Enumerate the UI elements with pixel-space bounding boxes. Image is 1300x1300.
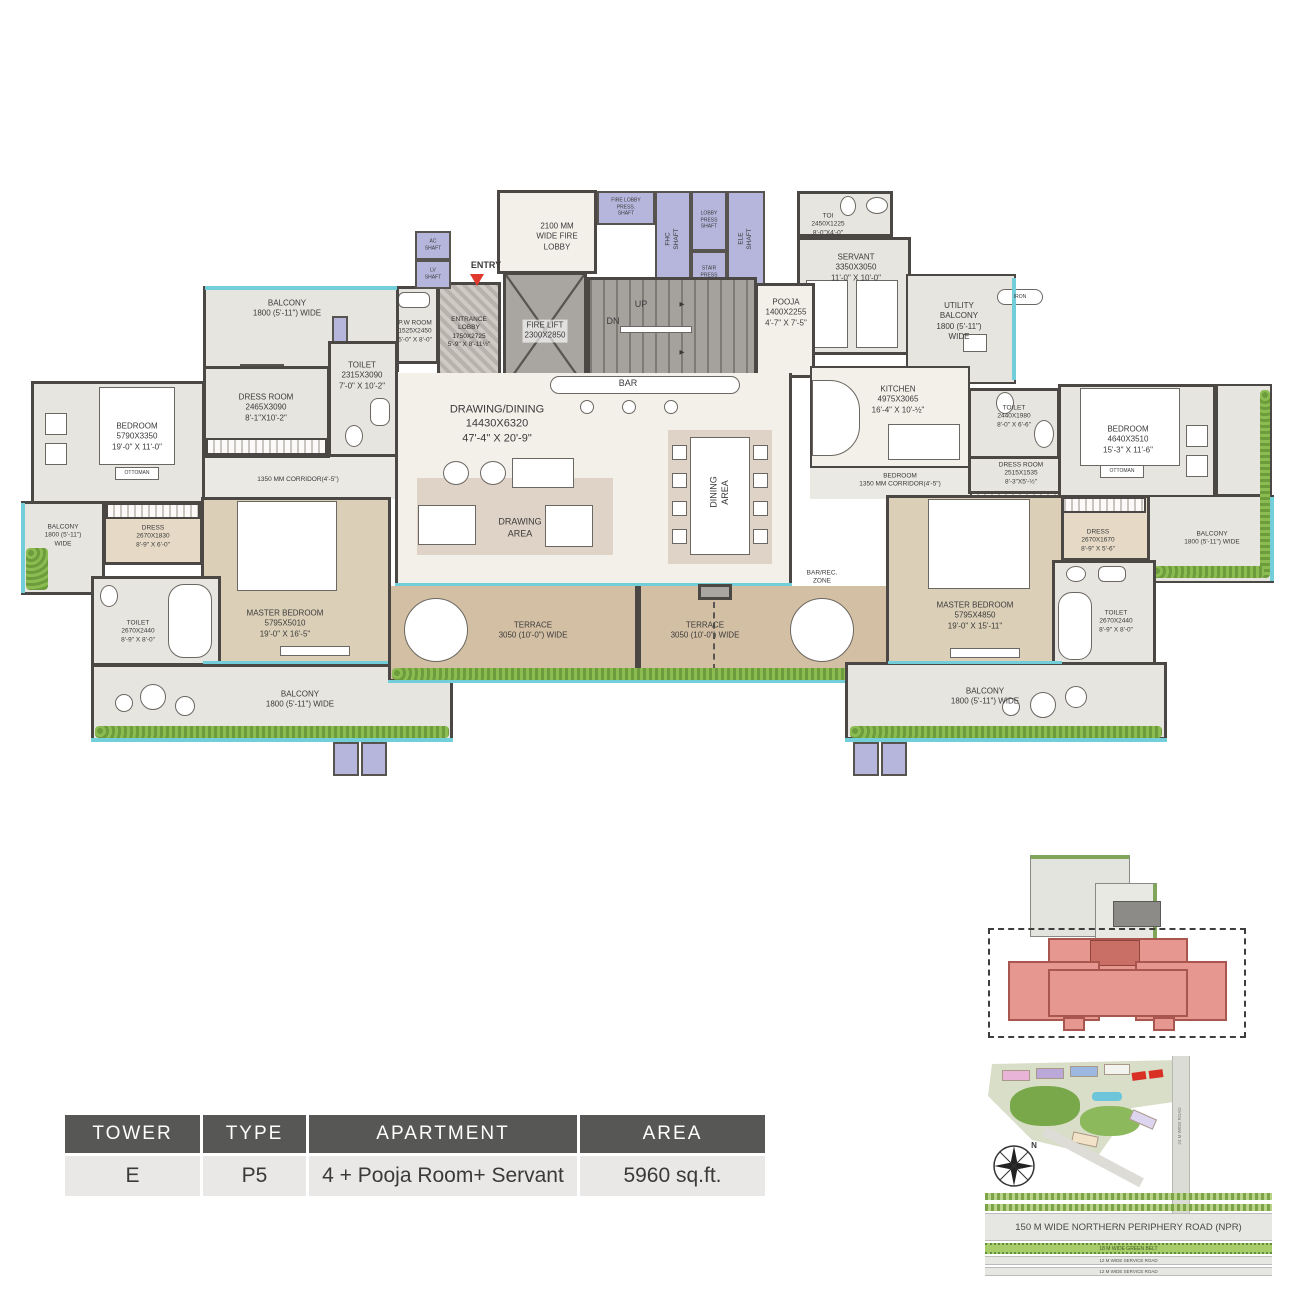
site-building-4 (1104, 1064, 1130, 1075)
chair-balcony-br-3 (1002, 698, 1020, 716)
bench-master-right (950, 648, 1020, 658)
header-type: TYPE (203, 1115, 306, 1153)
site-building-2 (1036, 1068, 1064, 1079)
vertical-road (1172, 1056, 1190, 1214)
chair-balcony-br-1 (1030, 692, 1056, 718)
chair-bedroom-left-1 (45, 413, 67, 435)
glass-utility (1012, 278, 1016, 380)
dining-chair-5 (753, 445, 768, 460)
compass: N (990, 1142, 1038, 1190)
glass-master-right-south (888, 661, 1062, 664)
basin-toilet-right-lower (1098, 566, 1126, 582)
npr-road-label: 150 M WIDE NORTHERN PERIPHERY ROAD (NPR) (985, 1222, 1272, 1233)
chair-balcony-br-2 (1065, 686, 1087, 708)
site-building-1 (1002, 1070, 1030, 1081)
green-belt-label: 18 M WIDE GREEN BELT (985, 1246, 1272, 1252)
wc-toilet-right-upper (996, 392, 1014, 414)
service-road-band-2: 12 M WIDE SERVICE ROAD (985, 1267, 1272, 1276)
service-road-1-label: 12 M WIDE SERVICE ROAD (985, 1258, 1272, 1263)
dining-chair-4 (672, 529, 687, 544)
corridor-right-floor (810, 464, 986, 499)
site-green-1 (1010, 1086, 1080, 1126)
tub-toilet-lower-left (168, 584, 212, 658)
sofa-drawing-3 (418, 505, 476, 545)
header-apartment: APARTMENT (309, 1115, 577, 1153)
plants-terrace (392, 668, 886, 680)
npr-road-band: 150 M WIDE NORTHERN PERIPHERY ROAD (NPR) (985, 1213, 1272, 1241)
plants-balcony-far-left (26, 548, 48, 590)
fire-lobby-press-shaft (597, 191, 655, 225)
value-tower: E (65, 1156, 200, 1196)
glass-balcony-right (1270, 497, 1274, 581)
dining-table (690, 437, 750, 555)
lift-cross-icon (506, 275, 584, 385)
keyplan-tab-right (1153, 1017, 1175, 1031)
service-road-band-1: 12 M WIDE SERVICE ROAD (985, 1256, 1272, 1265)
lobby-press-shaft (691, 191, 727, 251)
label-bar-rec-zone: BAR/REC. ZONE (807, 570, 838, 587)
corridor-left-floor (203, 455, 397, 499)
wardrobe-dress-right (1050, 497, 1146, 513)
key-plan (985, 845, 1255, 1063)
chair-balcony-bl-2 (175, 696, 195, 716)
stair-handrail (620, 326, 692, 333)
title-block-table: TOWER TYPE APARTMENT AREA E P5 4 + Pooja… (65, 1115, 765, 1199)
iron-board (997, 289, 1043, 305)
fhc-shaft (655, 191, 691, 287)
bar-stool-3 (664, 400, 678, 414)
header-area: AREA (580, 1115, 765, 1153)
basin-toilet-upper-left (370, 398, 390, 426)
bed-master-right (928, 499, 1030, 589)
dining-chair-7 (753, 501, 768, 516)
sofa-drawing-1 (512, 458, 574, 488)
bed-bedroom-right (1080, 388, 1180, 466)
lv-shaft (415, 260, 451, 289)
dining-chair-1 (672, 445, 687, 460)
wc-toilet-lower-left (100, 585, 118, 607)
wardrobe-dress-left (106, 503, 200, 519)
site-building-3 (1070, 1066, 1098, 1077)
chair-bedroom-left-2 (45, 443, 67, 465)
pw-basin (398, 292, 430, 308)
green-dot-row-1 (985, 1193, 1272, 1200)
wc-toilet-upper-left (345, 425, 363, 447)
room-fire-lift (503, 272, 587, 388)
value-apartment: 4 + Pooja Room+ Servant (309, 1156, 577, 1196)
service-road-2-label: 12 M WIDE SERVICE ROAD (985, 1269, 1272, 1274)
keyplan-tab-left (1063, 1017, 1085, 1031)
chair-bedroom-right-1 (1186, 425, 1208, 447)
bench-master-left (280, 646, 350, 656)
keyplan-core (1113, 901, 1161, 927)
bed-master-left (237, 501, 337, 591)
basin-toilet-right-upper (1034, 420, 1054, 448)
glass-master-left-south (203, 661, 389, 664)
glass-terrace-south (388, 680, 890, 683)
bed-bedroom-left (99, 387, 175, 465)
dining-chair-3 (672, 501, 687, 516)
shaft-box-bl-1 (333, 742, 359, 776)
servant-bed-2 (856, 280, 898, 348)
room-entrance-lobby (437, 282, 501, 380)
wc-toi-top (840, 196, 856, 216)
plants-balcony-bottom-right (850, 726, 1162, 738)
table-header-row: TOWER TYPE APARTMENT AREA (65, 1115, 765, 1153)
armchair-drawing-1 (443, 461, 469, 485)
plants-balcony-bottom-left (95, 726, 449, 738)
keyplan-highlight-lower (1048, 969, 1188, 1017)
glass-balcony-top-left (205, 286, 397, 290)
ottoman-left-rect (115, 467, 159, 480)
basin-toi-top (866, 197, 888, 214)
entry-arrow-icon (470, 274, 484, 286)
value-type: P5 (203, 1156, 306, 1196)
bar-stool-1 (580, 400, 594, 414)
shaft-box-br-2 (881, 742, 907, 776)
ac-shaft (415, 231, 451, 260)
site-pool (1092, 1092, 1122, 1101)
terrace-sofa-left (404, 598, 468, 662)
green-belt-band: 18 M WIDE GREEN BELT (985, 1243, 1272, 1254)
terrace-divider-block (698, 584, 732, 600)
ottoman-right-rect (1100, 465, 1144, 478)
floor-plan-page: 2100 MM WIDE FIRE LOBBY FIRE LOBBY PRESS… (0, 0, 1300, 1300)
ele-shaft (727, 191, 765, 287)
dining-chair-8 (753, 529, 768, 544)
green-dot-row-2 (985, 1204, 1272, 1211)
value-area: 5960 sq.ft. (580, 1156, 765, 1196)
plants-balcony-right-bottom (1152, 566, 1264, 578)
kitchen-island (812, 380, 860, 456)
dining-chair-6 (753, 473, 768, 488)
armchair-drawing-2 (480, 461, 506, 485)
room-fire-lobby (497, 190, 597, 274)
plants-balcony-right-edge (1260, 390, 1270, 578)
tub-toilet-right-lower (1058, 592, 1092, 660)
bar-counter (550, 376, 740, 394)
chair-bedroom-right-2 (1186, 455, 1208, 477)
wardrobe-dress-room-left (206, 438, 327, 455)
room-toilet-upper-left (328, 341, 398, 457)
room-pooja (755, 283, 815, 378)
terrace-sofa-right (790, 598, 854, 662)
washing-machine (963, 334, 987, 352)
table-value-row: E P5 4 + Pooja Room+ Servant 5960 sq.ft. (65, 1156, 765, 1196)
header-tower: TOWER (65, 1115, 200, 1153)
wc-toilet-right-lower (1066, 566, 1086, 582)
chair-balcony-bl-3 (115, 694, 133, 712)
room-dress-room-right (968, 456, 1068, 494)
compass-rose-icon (990, 1142, 1038, 1190)
shaft-box-br-1 (853, 742, 879, 776)
glass-balcony-far-left (21, 503, 25, 593)
bar-stool-2 (622, 400, 636, 414)
sofa-drawing-2 (545, 505, 593, 547)
site-green-2 (1080, 1106, 1140, 1136)
shaft-box-bl-2 (361, 742, 387, 776)
glass-balcony-bottom-left (91, 738, 453, 742)
chair-balcony-bl-1 (140, 684, 166, 710)
terrace-divider-line (713, 602, 715, 670)
kitchen-counter (888, 424, 960, 460)
dining-chair-2 (672, 473, 687, 488)
